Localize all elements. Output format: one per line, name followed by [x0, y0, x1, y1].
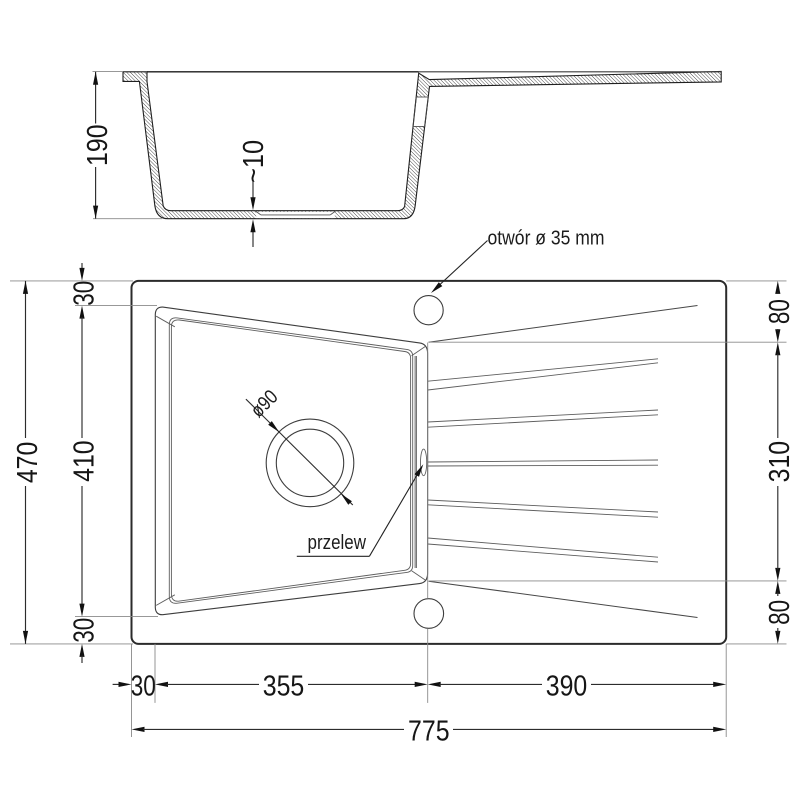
svg-text:390: 390: [546, 670, 588, 702]
svg-text:30: 30: [68, 618, 100, 643]
svg-text:775: 775: [408, 715, 450, 747]
svg-text:190: 190: [82, 124, 114, 166]
svg-text:otwór ø 35 mm: otwór ø 35 mm: [488, 228, 605, 250]
svg-text:355: 355: [263, 670, 305, 702]
svg-text:410: 410: [68, 440, 100, 482]
svg-text:30: 30: [131, 670, 156, 702]
svg-text:przelew: przelew: [308, 532, 367, 554]
svg-text:~10: ~10: [238, 140, 270, 183]
svg-text:80: 80: [764, 600, 796, 625]
svg-text:470: 470: [12, 442, 44, 484]
svg-text:310: 310: [764, 441, 796, 483]
svg-text:80: 80: [764, 299, 796, 324]
svg-text:30: 30: [68, 281, 100, 306]
